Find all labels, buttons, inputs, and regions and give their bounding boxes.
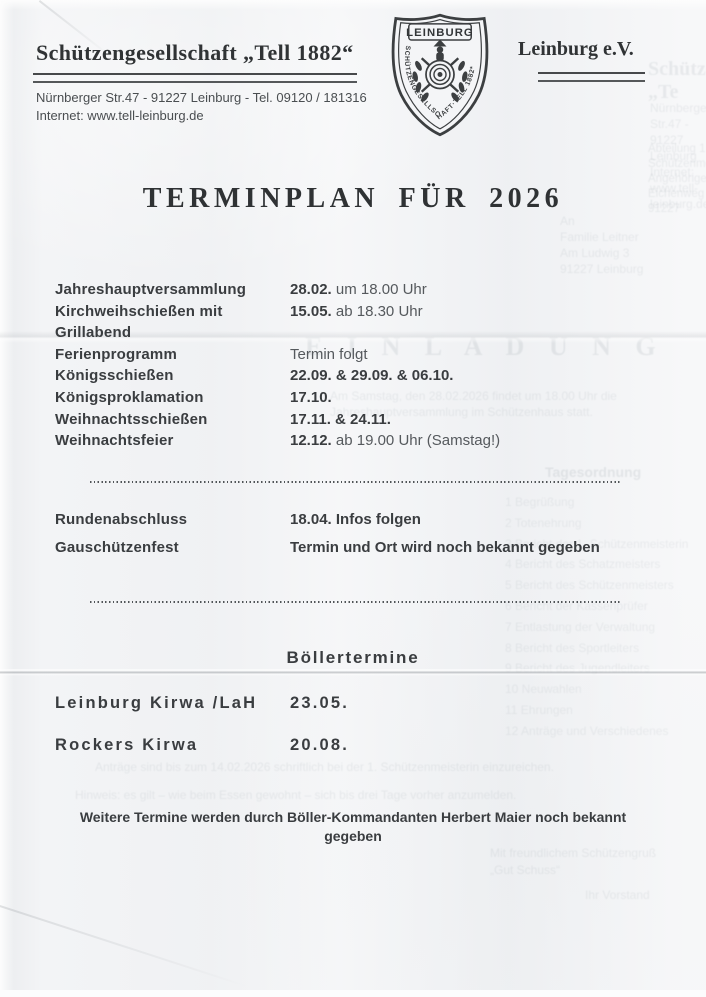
boeller-table: Leinburg Kirwa /LaH 23.05. Rockers Kirwa… [55, 694, 655, 778]
org-name-right: Leinburg e.V. [518, 38, 634, 61]
event-date: 17.11. & 24.11. [290, 411, 391, 428]
club-crest-logo: LEINBURG SCHÜTZENGESELLSCHAFT·TELL 1882* [386, 12, 494, 143]
event-label: Grillabend [55, 324, 290, 341]
bleed-through-text: Hinweis: es gilt – wie beim Essen gewohn… [75, 788, 516, 802]
table-row: Rockers Kirwa 20.08. [55, 736, 655, 778]
org-address: Nürnberger Str.47 - 91227 Leinburg - Tel… [36, 89, 367, 124]
table-row: Rundenabschluss 18.04. Infos folgen [55, 511, 655, 539]
footer-note-line1: Weitere Termine werden durch Böller-Komm… [43, 808, 663, 827]
event-value: Termin und Ort wird noch bekannt gegeben [290, 539, 655, 556]
event-date: 18.04. [290, 511, 332, 528]
paper-crease [0, 669, 706, 676]
header-rule-right [538, 72, 645, 82]
section-heading-boellertermine: Böllertermine [0, 648, 706, 668]
table-row: Kirchweihschießen mit 15.05. ab 18.30 Uh… [55, 303, 655, 325]
event-date: 22.09. & 29.09. & 06.10. [290, 367, 453, 384]
event-value: 15.05. ab 18.30 Uhr [290, 303, 655, 320]
event-value: 28.02. um 18.00 Uhr [290, 281, 655, 298]
bleed-through-text: Schützengesellschaft „Te [648, 58, 706, 104]
header-rule-left [33, 73, 357, 83]
event-value: 18.04. Infos folgen [290, 511, 655, 528]
event-date: 20.08. [290, 736, 655, 755]
svg-text:LEINBURG: LEINBURG [406, 27, 474, 39]
dotted-separator [90, 481, 620, 483]
event-note: Termin und Ort wird noch bekannt gegeben [290, 539, 600, 556]
event-value: Termin folgt [290, 346, 655, 363]
bleed-through-text: An Familie Leitner Am Ludwig 3 91227 Lei… [560, 213, 643, 277]
event-label: Ferienprogramm [55, 346, 290, 363]
event-note: ab 18.30 Uhr [332, 303, 423, 320]
org-name: Schützengesellschaft „Tell 1882“ [36, 40, 354, 66]
dotted-separator [90, 601, 620, 603]
event-note: Termin folgt [290, 346, 368, 363]
event-note: um 18.00 Uhr [332, 281, 427, 298]
club-crest-icon: LEINBURG SCHÜTZENGESELLSCHAFT·TELL 1882* [386, 12, 494, 138]
event-date: 28.02. [290, 281, 332, 298]
event-note: ab 19.00 Uhr (Samstag!) [332, 432, 500, 449]
event-label: Gauschützenfest [55, 539, 290, 556]
event-label: Kirchweihschießen mit [55, 303, 290, 320]
event-label: Leinburg Kirwa /LaH [55, 694, 290, 713]
event-label: Königsproklamation [55, 389, 290, 406]
bleed-through-text: Mit freundlichem Schützengruß „Gut Schus… [490, 845, 656, 879]
footer-note-line2: gegeben [43, 827, 663, 846]
event-date: 12.12. [290, 432, 332, 449]
event-label: Jahreshauptversammlung [55, 281, 290, 298]
event-date: 23.05. [290, 694, 655, 713]
event-label: Rundenabschluss [55, 511, 290, 528]
table-row: Weihnachtsschießen 17.11. & 24.11. [55, 411, 655, 433]
table-row: Weihnachtsfeier 12.12. ab 19.00 Uhr (Sam… [55, 432, 655, 454]
event-value: 12.12. ab 19.00 Uhr (Samstag!) [290, 432, 655, 449]
scan-edge [0, 990, 706, 997]
table-row: Jahreshauptversammlung 28.02. um 18.00 U… [55, 281, 655, 303]
page-title: TERMINPLAN FÜR 2026 [0, 183, 706, 215]
event-value: 17.10. [290, 389, 655, 406]
schedule-table: Jahreshauptversammlung 28.02. um 18.00 U… [55, 281, 655, 454]
event-date: 17.10. [290, 389, 332, 406]
event-label: Weihnachtsschießen [55, 411, 290, 428]
event-value: 22.09. & 29.09. & 06.10. [290, 367, 655, 384]
table-row: Königsproklamation 17.10. [55, 389, 655, 411]
schedule-table-2: Rundenabschluss 18.04. Infos folgen Gaus… [55, 511, 655, 567]
event-label: Königsschießen [55, 367, 290, 384]
table-row: Gauschützenfest Termin und Ort wird noch… [55, 539, 655, 567]
event-date: 15.05. [290, 303, 332, 320]
table-row: Königsschießen 22.09. & 29.09. & 06.10. [55, 367, 655, 389]
bleed-through-text: Tagesordnung [545, 464, 641, 480]
table-row: Grillabend [55, 324, 655, 346]
paper-crease [0, 905, 247, 987]
footer-note: Weitere Termine werden durch Böller-Komm… [43, 808, 663, 846]
event-label: Rockers Kirwa [55, 736, 290, 755]
org-address-line1: Nürnberger Str.47 - 91227 Leinburg - Tel… [36, 89, 367, 107]
event-value: 17.11. & 24.11. [290, 411, 655, 428]
bleed-through-text: Ihr Vorstand [585, 888, 650, 902]
table-row: Leinburg Kirwa /LaH 23.05. [55, 694, 655, 736]
org-address-line2: Internet: www.tell-leinburg.de [36, 107, 367, 125]
scanned-document-page: Schützengesellschaft „Te Nürnberger Str.… [0, 0, 706, 997]
event-note: Infos folgen [332, 511, 421, 528]
table-row: Ferienprogramm Termin folgt [55, 346, 655, 368]
event-label: Weihnachtsfeier [55, 432, 290, 449]
